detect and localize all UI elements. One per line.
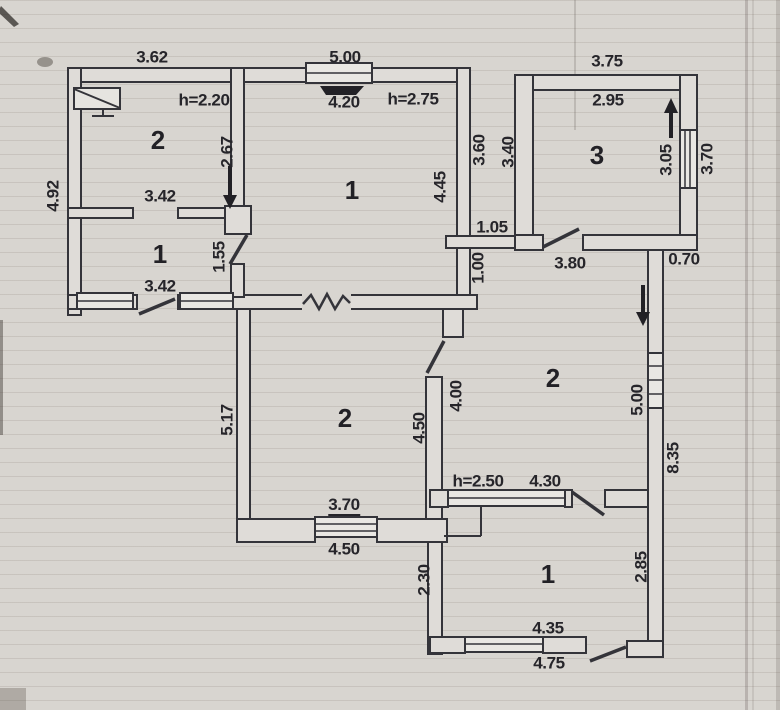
- room-number-right-bottom: 1: [541, 561, 555, 587]
- dim-room1-east-outer: 3.60: [471, 134, 488, 166]
- dim-room1b-window: 4.35: [532, 620, 564, 637]
- window-room2r-east: [648, 353, 663, 408]
- dim-outer-width-left: 3.62: [136, 49, 168, 66]
- dim-room1-inner-east: 4.45: [432, 171, 449, 203]
- dim-room3-inner-east: 3.05: [658, 144, 675, 176]
- alcove-wall-lines: [444, 507, 481, 536]
- dim-room1b-bottom: 4.75: [533, 655, 565, 672]
- scanned-floorplan-page: 3.62 5.00 h=2.20 4.20 h=2.75 2.67 4.92 3…: [0, 0, 780, 710]
- dim-right-outer-east: 8.35: [665, 442, 682, 474]
- wall-break-symbol: [302, 292, 351, 311]
- dim-step-offset: 0.70: [668, 251, 700, 268]
- dim-outer-left: 4.92: [45, 180, 62, 212]
- entrance-arrows: [223, 98, 678, 326]
- window-top-main-room: [306, 63, 372, 95]
- dim-right-outer-top: 3.75: [591, 53, 623, 70]
- door-swing-hall-entrance: [139, 299, 175, 314]
- dim-room3-inner-width: 2.95: [592, 92, 624, 109]
- dim-room3-west: 3.40: [500, 136, 517, 168]
- dim-passage-gap: 1.05: [476, 219, 508, 236]
- dim-room2r-west: 4.00: [448, 380, 465, 412]
- dim-room1b-west: 2.30: [416, 564, 433, 596]
- dim-room2c-bottom: 4.50: [328, 541, 360, 558]
- room-number-right-middle: 2: [546, 365, 560, 391]
- dim-height-room1b: h=2.50: [453, 473, 504, 490]
- dim-height-room2tl: h=2.20: [179, 92, 230, 109]
- dim-room2c-east-inner: 4.50: [411, 412, 428, 444]
- entrance-arrow-room3: [664, 98, 678, 138]
- dim-room3-east-outer: 3.70: [699, 143, 716, 175]
- room-number-right-top: 3: [590, 142, 604, 168]
- dim-outer-width-main: 5.00: [329, 49, 361, 66]
- dim-room1b-east-inner: 2.85: [633, 551, 650, 583]
- window-hall-left: [77, 293, 133, 309]
- dim-room2tl-width: 3.42: [144, 188, 176, 205]
- room-number-left-top: 2: [151, 127, 165, 153]
- door-symbols: [139, 206, 626, 661]
- dim-passage-wall: 1.00: [470, 252, 487, 284]
- dim-hall-door: 1.55: [211, 241, 228, 273]
- door-jamb-hall: [225, 206, 251, 234]
- room-number-left-center: 2: [338, 405, 352, 431]
- room-number-left-hall: 1: [153, 241, 167, 267]
- dim-room2c-west: 5.17: [219, 404, 236, 436]
- room-number-left-main: 1: [345, 177, 359, 203]
- dim-room2c-window: 3.70: [328, 496, 360, 516]
- dim-height-room1: h=2.75: [388, 91, 439, 108]
- door-swing-room1b-north: [572, 492, 604, 515]
- dim-corridor-width: 3.80: [554, 255, 586, 272]
- dim-room2tl-east: 2.67: [219, 136, 236, 168]
- door-swing-hall-corridor: [230, 235, 247, 264]
- window-room3-east: [680, 130, 697, 188]
- window-room2c-south: [315, 517, 377, 537]
- dim-room1b-north: 4.30: [529, 473, 561, 490]
- door-swing-room2r-west: [427, 341, 444, 373]
- dim-room1-inner-width: 4.20: [328, 94, 360, 111]
- dim-hall-width: 3.42: [144, 278, 176, 295]
- door-swing-room3: [543, 229, 579, 247]
- window-room1b-north: [448, 490, 565, 506]
- window-hall-right: [180, 293, 233, 309]
- dim-room2r-east-inner: 5.00: [629, 384, 646, 416]
- window-room1b-south: [465, 637, 543, 652]
- door-swing-room1b-south: [590, 647, 626, 661]
